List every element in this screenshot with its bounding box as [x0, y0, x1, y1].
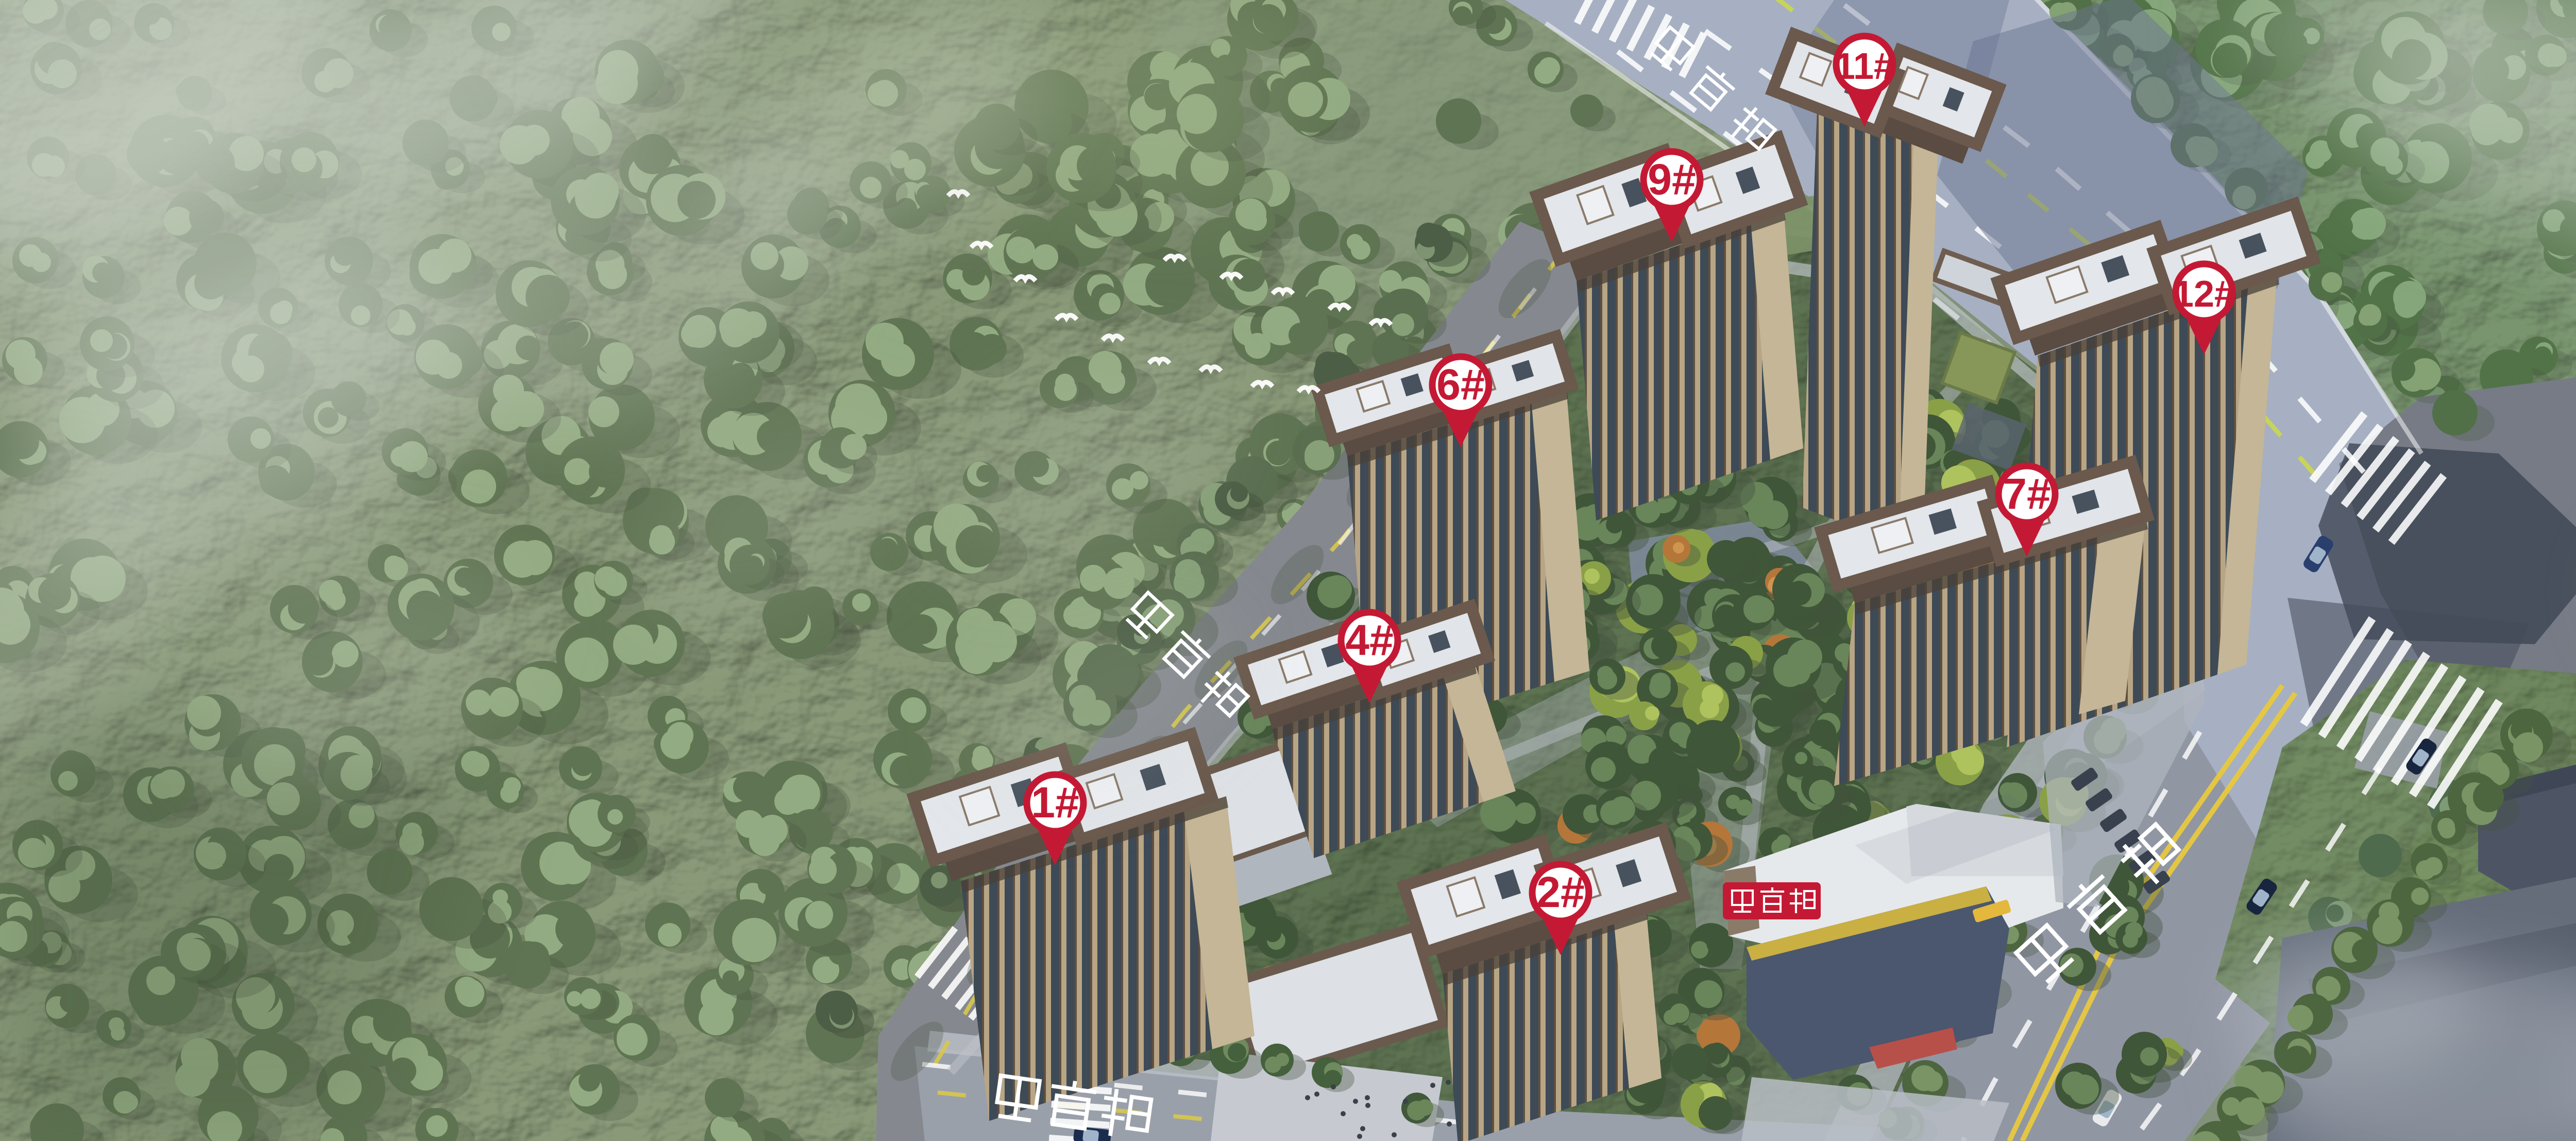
svg-text:6#: 6# — [1436, 360, 1484, 409]
svg-text:9#: 9# — [1648, 155, 1696, 204]
svg-text:2#: 2# — [1536, 868, 1584, 916]
svg-text:7#: 7# — [2003, 469, 2050, 518]
svg-text:12#: 12# — [2173, 274, 2235, 315]
svg-text:11#: 11# — [1835, 46, 1894, 87]
svg-text:4#: 4# — [1345, 616, 1393, 664]
svg-text:1#: 1# — [1031, 778, 1079, 827]
